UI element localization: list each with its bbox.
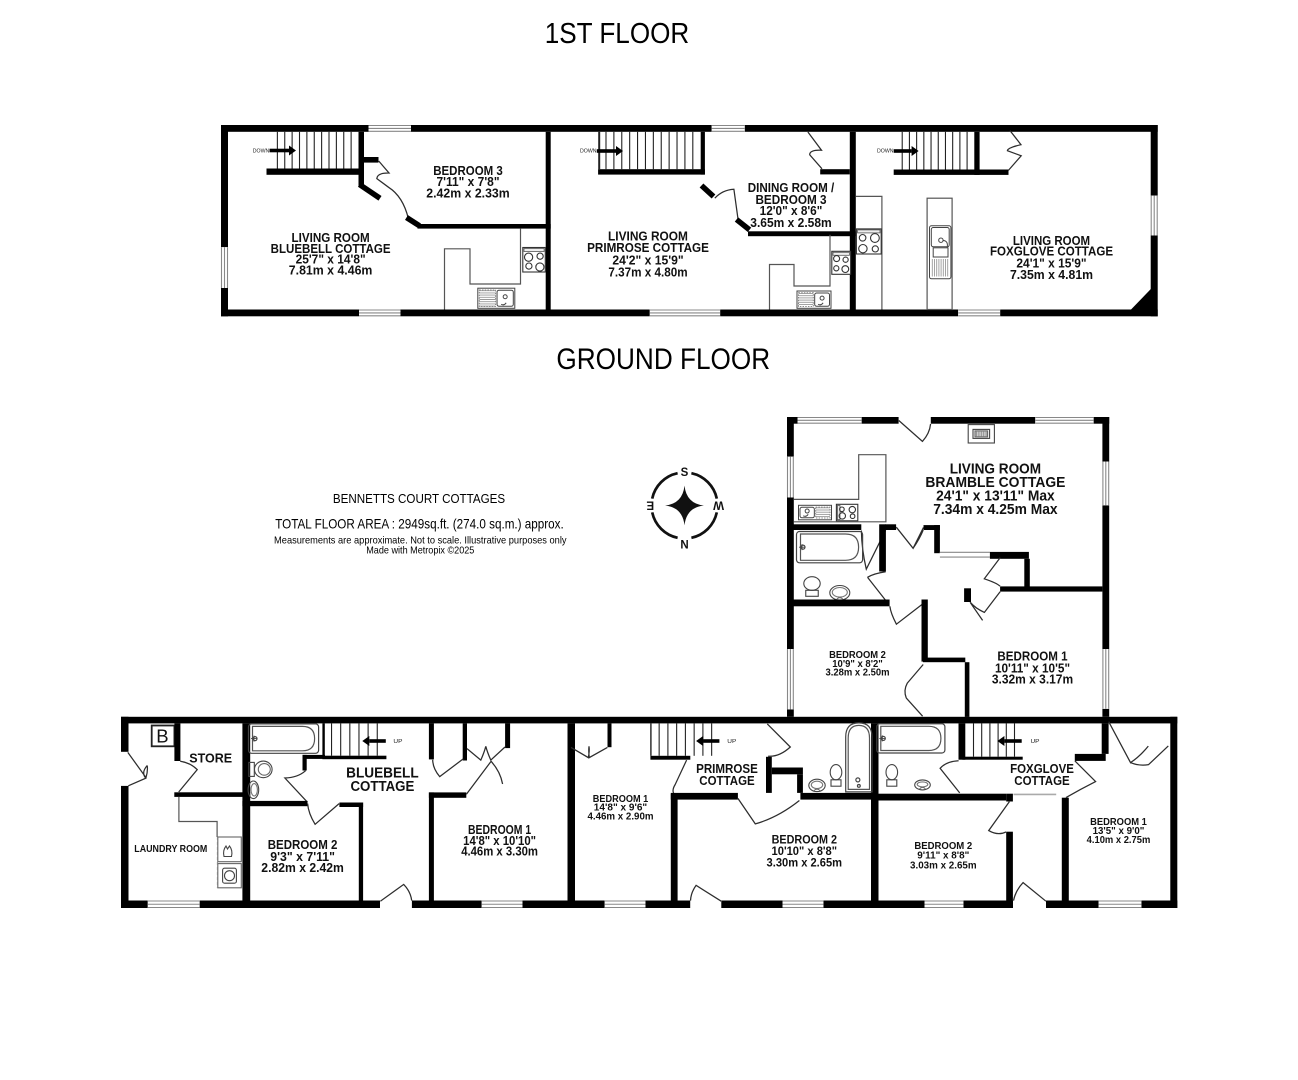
svg-text:E: E	[646, 498, 654, 510]
svg-text:7.34m x 4.25m Max: 7.34m x 4.25m Max	[933, 501, 1058, 518]
svg-text:N: N	[680, 540, 688, 552]
svg-text:7.35m x 4.81m: 7.35m x 4.81m	[1010, 267, 1093, 282]
svg-text:4.10m x 2.75m: 4.10m x 2.75m	[1087, 834, 1151, 846]
svg-text:4.46m x 2.90m: 4.46m x 2.90m	[587, 811, 653, 822]
svg-text:7.81m x 4.46m: 7.81m x 4.46m	[289, 263, 373, 278]
svg-text:DOWN: DOWN	[877, 148, 894, 154]
svg-text:2.82m x 2.42m: 2.82m x 2.42m	[261, 860, 344, 875]
svg-text:3.28m x 2.50m: 3.28m x 2.50m	[825, 667, 889, 678]
svg-text:S: S	[681, 467, 689, 479]
svg-text:STORE: STORE	[189, 752, 232, 766]
svg-text:COTTAGE: COTTAGE	[350, 779, 414, 795]
svg-text:2.42m x 2.33m: 2.42m x 2.33m	[426, 185, 509, 200]
svg-text:BENNETTS COURT COTTAGES: BENNETTS COURT COTTAGES	[333, 491, 505, 506]
svg-text:COTTAGE: COTTAGE	[1014, 774, 1069, 788]
svg-text:W: W	[713, 498, 724, 510]
svg-text:GROUND FLOOR: GROUND FLOOR	[556, 343, 770, 376]
svg-text:4.46m x 3.30m: 4.46m x 3.30m	[461, 844, 538, 859]
svg-text:7.37m x 4.80m: 7.37m x 4.80m	[608, 264, 687, 279]
svg-text:UP: UP	[1031, 739, 1040, 745]
svg-text:3.30m x 2.65m: 3.30m x 2.65m	[767, 857, 843, 869]
svg-text:COTTAGE: COTTAGE	[699, 774, 754, 788]
svg-text:BEDROOM 2: BEDROOM 2	[772, 835, 837, 847]
svg-text:Made with Metropix ©2025: Made with Metropix ©2025	[366, 545, 474, 556]
svg-text:DOWN: DOWN	[253, 148, 270, 154]
svg-text:1ST FLOOR: 1ST FLOOR	[545, 18, 690, 50]
svg-text:UP: UP	[393, 739, 402, 745]
svg-text:3.32m x 3.17m: 3.32m x 3.17m	[992, 672, 1073, 686]
svg-text:3.65m x 2.58m: 3.65m x 2.58m	[750, 215, 831, 230]
svg-text:TOTAL FLOOR AREA : 2949sq.ft.: TOTAL FLOOR AREA : 2949sq.ft. (274.0 sq.…	[275, 515, 564, 531]
svg-text:UP: UP	[727, 739, 736, 745]
svg-text:3.03m x 2.65m: 3.03m x 2.65m	[910, 860, 977, 872]
svg-text:B: B	[156, 726, 168, 747]
svg-text:DOWN: DOWN	[580, 148, 597, 154]
svg-text:LAUNDRY ROOM: LAUNDRY ROOM	[134, 844, 207, 855]
